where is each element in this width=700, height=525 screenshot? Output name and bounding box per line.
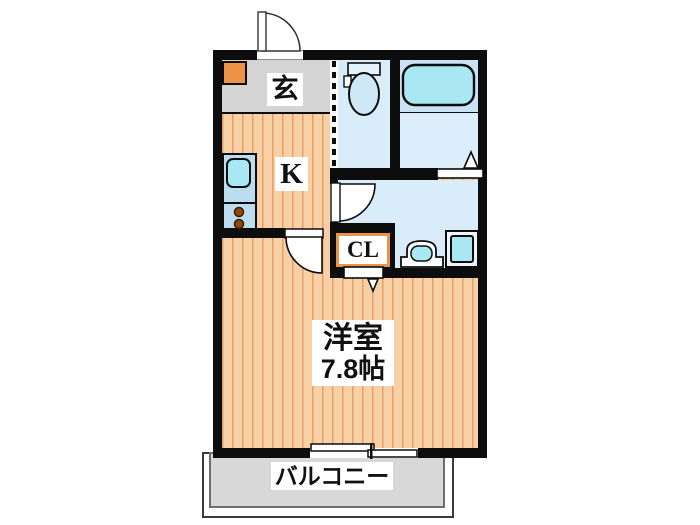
bathroom-door-icon	[464, 152, 478, 168]
main-room-area: 7.8帖	[321, 355, 386, 383]
balcony-label: バルコニー	[275, 464, 390, 488]
stove-burner-2	[235, 220, 244, 229]
sliding-window-sash-left	[311, 444, 374, 451]
entrance-door-leaf	[258, 12, 266, 51]
washbasin-bowl	[411, 246, 432, 261]
balcony-label-box: バルコニー	[271, 462, 393, 490]
main-room-label-box: 洋室 7.8帖	[312, 320, 394, 386]
fixtures-overlay	[0, 0, 700, 525]
sliding-window-sash-right	[368, 450, 417, 457]
main-room-label: 洋室	[323, 323, 383, 355]
sliding-window-latch	[370, 443, 373, 459]
closet-door-pointer	[368, 279, 378, 291]
bathtub-icon	[403, 65, 474, 105]
floor-plan: CL	[0, 0, 700, 525]
kitchen-label: K	[280, 159, 303, 189]
kitchen-label-box: K	[275, 157, 308, 191]
bathroom-door-threshold	[437, 169, 483, 178]
room-door-icon	[286, 237, 322, 273]
washing-machine-inner	[451, 236, 473, 262]
washroom-door-icon	[338, 184, 375, 221]
washroom-door-leaf	[331, 183, 340, 222]
toilet-icon	[349, 73, 379, 115]
stove-burner-1	[235, 208, 244, 217]
closet-door-icon	[344, 267, 383, 278]
entrance-door-icon	[262, 13, 300, 51]
entrance-label-box: 玄	[267, 73, 303, 106]
kitchen-sink-icon	[227, 159, 250, 187]
entrance-label: 玄	[272, 75, 299, 103]
